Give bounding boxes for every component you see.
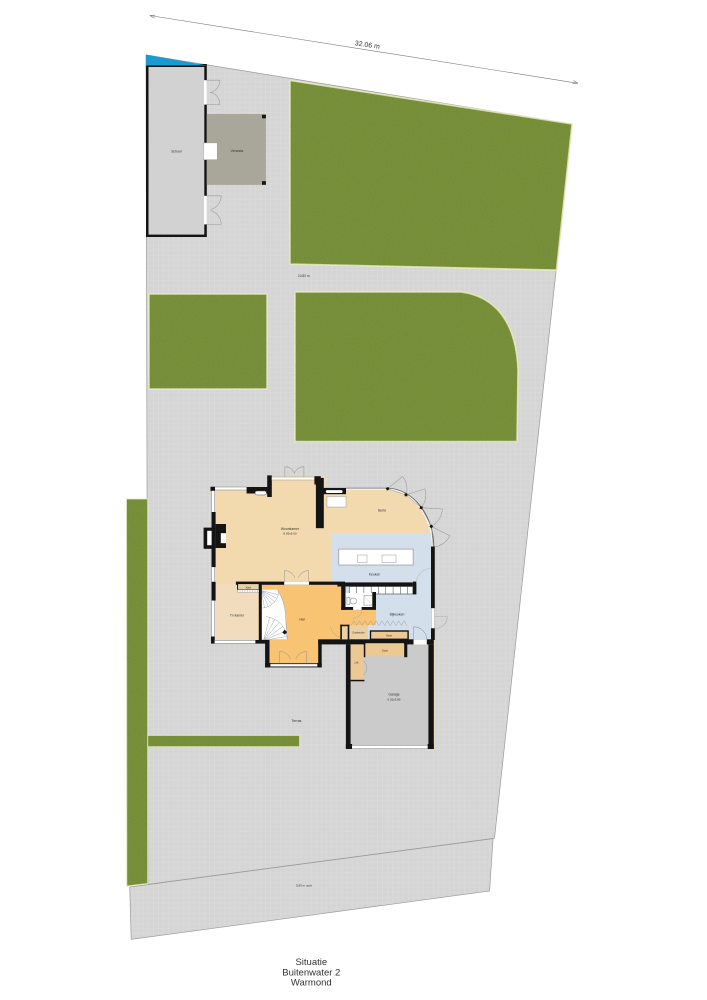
svg-text:Hal: Hal xyxy=(299,618,304,622)
svg-text:Warmond: Warmond xyxy=(291,978,332,989)
svg-text:Tv kamer: Tv kamer xyxy=(230,614,245,618)
svg-text:Veranda: Veranda xyxy=(231,149,244,153)
svg-text:Kast: Kast xyxy=(386,634,392,638)
svg-text:Bijkeuken: Bijkeuken xyxy=(390,613,405,617)
svg-text:Keuken: Keuken xyxy=(369,573,381,577)
svg-text:Woonkamer: Woonkamer xyxy=(281,527,300,531)
svg-text:Garage: Garage xyxy=(388,693,399,697)
svg-text:Kast: Kast xyxy=(382,648,388,652)
svg-text:Serre: Serre xyxy=(378,509,386,513)
svg-text:10.80 m: 10.80 m xyxy=(298,274,310,278)
svg-text:Lift: Lift xyxy=(355,660,359,664)
svg-text:5.83 m oprit: 5.83 m oprit xyxy=(296,884,312,888)
svg-text:8.05x5.00: 8.05x5.00 xyxy=(283,532,297,536)
svg-text:Terras: Terras xyxy=(292,719,302,723)
svg-text:Garderobe: Garderobe xyxy=(352,631,365,635)
svg-text:Schuur: Schuur xyxy=(171,150,183,154)
svg-text:Kast: Kast xyxy=(246,585,252,589)
svg-text:6.02x5.85: 6.02x5.85 xyxy=(387,698,401,702)
